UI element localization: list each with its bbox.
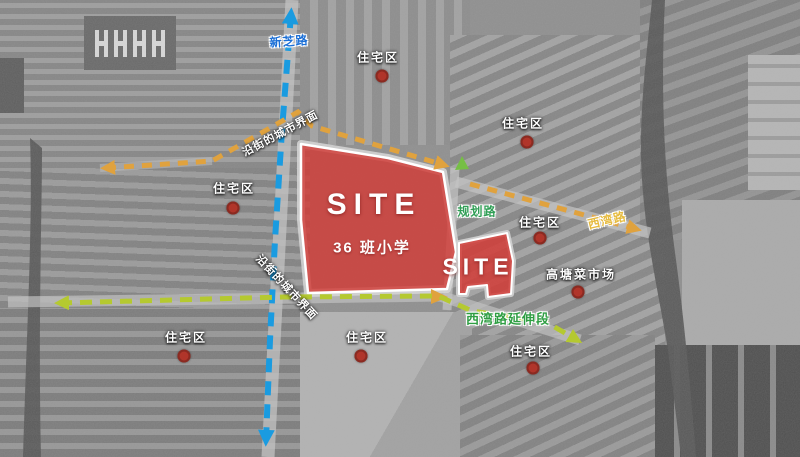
residential-dot-east — [534, 232, 547, 245]
planned-road-label: 规划路 — [457, 203, 496, 220]
residential-label-east: 住宅区 — [519, 214, 561, 231]
xiwan-extension-label: 西湾路延伸段 — [466, 309, 550, 328]
residential-dot-south — [355, 350, 368, 363]
residential-dot-north — [376, 70, 389, 83]
residential-dot-northeast — [521, 136, 534, 149]
residential-label-west: 住宅区 — [213, 180, 255, 197]
map-annotation-layer — [0, 0, 800, 457]
main-site-title: SITE — [327, 188, 422, 222]
residential-label-south: 住宅区 — [346, 329, 388, 346]
xinzhi-road-label: 新芝路 — [269, 31, 309, 51]
main-site-subtitle: 36 班小学 — [333, 237, 411, 258]
market-label: 高塘菜市场 — [546, 266, 616, 283]
residential-dot-southwest — [178, 350, 191, 363]
secondary-site-title: SITE — [442, 254, 513, 281]
residential-dot-southeast — [527, 362, 540, 375]
residential-label-southwest: 住宅区 — [165, 329, 207, 346]
residential-dot-west — [227, 202, 240, 215]
satellite-planning-map: 新芝路 沿街的城市界面 沿街的城市界面 住宅区 住宅区 住宅区 住宅区 住宅区 … — [0, 0, 800, 457]
residential-label-southeast: 住宅区 — [510, 343, 552, 360]
market-dot — [572, 286, 585, 299]
residential-label-northeast: 住宅区 — [502, 115, 544, 132]
residential-label-north: 住宅区 — [357, 49, 399, 66]
